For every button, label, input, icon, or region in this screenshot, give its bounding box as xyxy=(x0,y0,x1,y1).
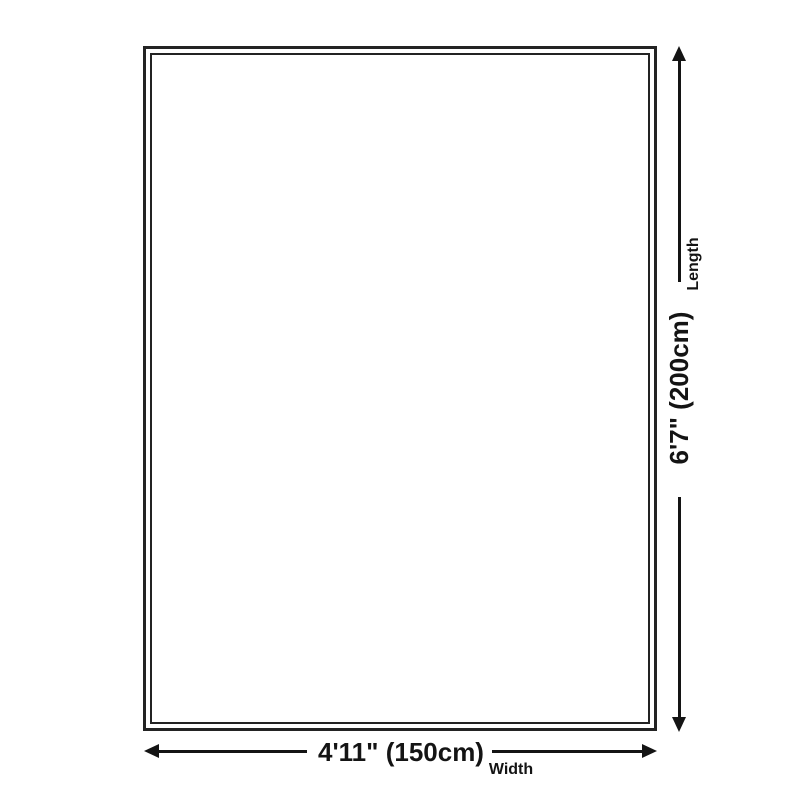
product-outline-inner-border xyxy=(150,53,650,724)
arrow-down-icon xyxy=(672,717,686,732)
width-dimension-line-right xyxy=(492,750,643,753)
length-dimension-line-bottom xyxy=(678,497,681,718)
length-dimension-line-top xyxy=(678,58,681,282)
size-diagram: Length 6'7" (200cm) 4'11" (150cm) Width xyxy=(0,0,800,800)
width-label: Width xyxy=(476,759,546,781)
width-dimension-line-left xyxy=(157,750,307,753)
product-outline xyxy=(143,46,657,731)
arrow-right-icon xyxy=(642,744,657,758)
width-value: 4'11" (150cm) xyxy=(306,735,496,769)
length-value: 6'7" (200cm) xyxy=(662,278,696,498)
